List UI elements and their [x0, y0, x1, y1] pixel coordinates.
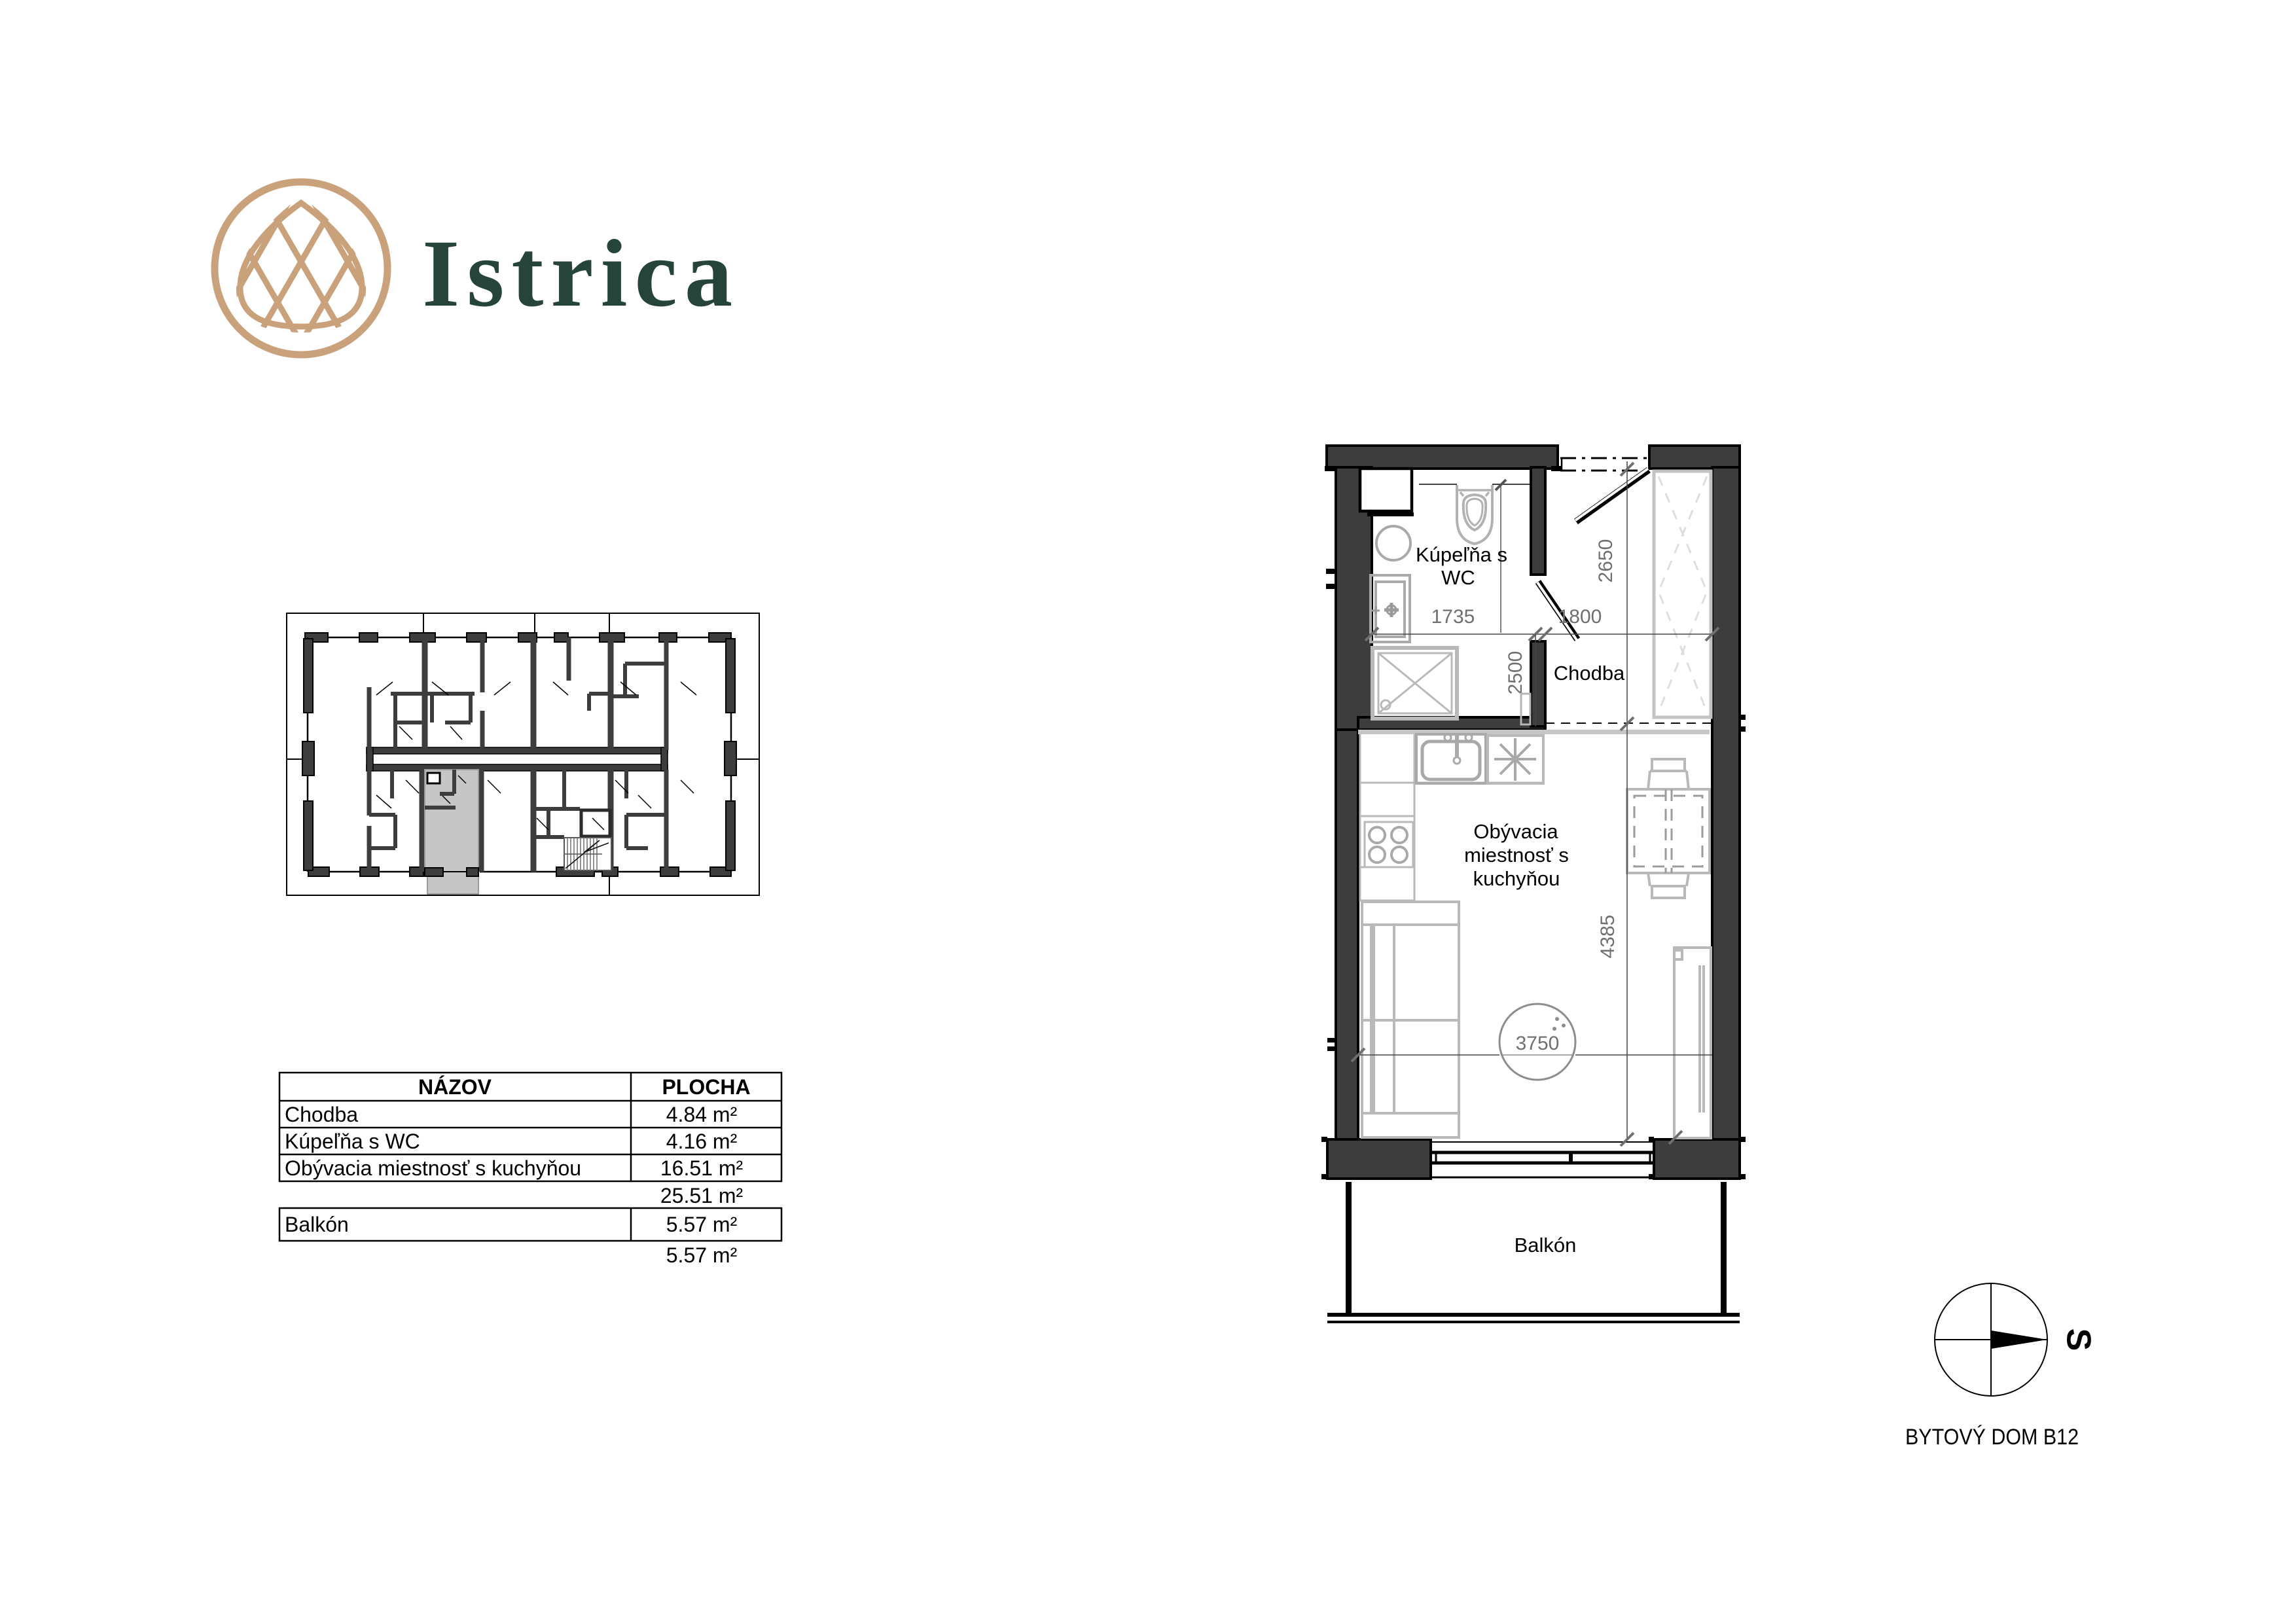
svg-text:kuchyňou: kuchyňou — [1473, 867, 1560, 890]
svg-text:25.51 m²: 25.51 m² — [660, 1184, 744, 1207]
svg-text:miestnosť s: miestnosť s — [1464, 844, 1569, 866]
svg-text:Kúpeľňa s: Kúpeľňa s — [1416, 543, 1507, 566]
svg-text:S: S — [2059, 1329, 2097, 1351]
svg-text:Obývacia: Obývacia — [1473, 820, 1558, 843]
svg-text:16.51 m²: 16.51 m² — [660, 1156, 744, 1180]
svg-text:Obývacia miestnosť s kuchyňou: Obývacia miestnosť s kuchyňou — [285, 1156, 581, 1180]
svg-text:WC: WC — [1441, 566, 1475, 589]
svg-text:2650: 2650 — [1595, 539, 1617, 583]
svg-text:Chodba: Chodba — [1554, 662, 1625, 685]
svg-text:Balkón: Balkón — [285, 1213, 349, 1236]
svg-text:NÁZOV: NÁZOV — [418, 1075, 492, 1099]
svg-text:Istrica: Istrica — [422, 220, 740, 327]
svg-text:5.57 m²: 5.57 m² — [666, 1243, 738, 1267]
svg-text:Balkón: Balkón — [1515, 1234, 1577, 1257]
svg-text:4385: 4385 — [1597, 915, 1619, 959]
svg-text:PLOCHA: PLOCHA — [662, 1075, 750, 1099]
svg-text:Chodba: Chodba — [285, 1103, 358, 1126]
svg-text:4.16 m²: 4.16 m² — [666, 1130, 738, 1153]
svg-text:3750: 3750 — [1516, 1033, 1560, 1054]
svg-text:1800: 1800 — [1558, 606, 1602, 628]
svg-text:1735: 1735 — [1431, 606, 1475, 628]
svg-text:4.84 m²: 4.84 m² — [666, 1103, 738, 1126]
svg-text:2500: 2500 — [1505, 651, 1526, 695]
svg-text:Kúpeľňa s WC: Kúpeľňa s WC — [285, 1130, 420, 1153]
svg-text:BYTOVÝ DOM B12: BYTOVÝ DOM B12 — [1905, 1425, 2079, 1450]
svg-text:5.57 m²: 5.57 m² — [666, 1213, 738, 1236]
